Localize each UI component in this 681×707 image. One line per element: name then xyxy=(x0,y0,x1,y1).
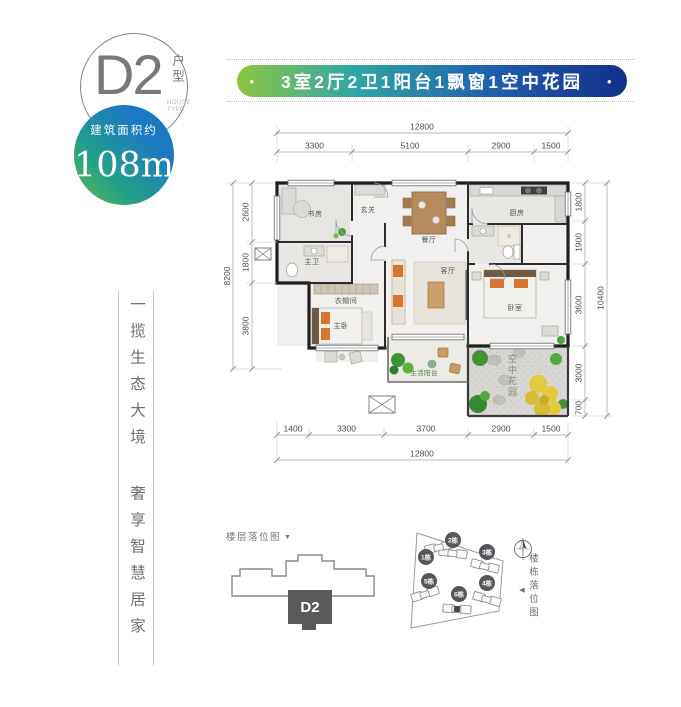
room-label-foyer: 玄关 xyxy=(361,205,376,214)
window xyxy=(565,280,571,334)
svg-text:4栋: 4栋 xyxy=(482,579,493,588)
window xyxy=(288,180,334,186)
window xyxy=(392,180,456,186)
divider-dotted-top xyxy=(227,59,635,60)
room-label-study: 书房 xyxy=(308,209,323,218)
slogan-line-2: 奢享智慧居家 xyxy=(125,485,147,644)
svg-text:700: 700 xyxy=(574,401,584,415)
site-plan-label: 楼栋落位图 ◀ xyxy=(517,553,539,621)
room-label-master-bath: 主卫 xyxy=(305,257,320,266)
svg-text:1栋: 1栋 xyxy=(421,553,432,562)
unit-d2-label: D2 xyxy=(300,599,319,616)
svg-text:8200: 8200 xyxy=(222,266,232,285)
divider-dotted-bottom xyxy=(227,101,635,102)
floor-plan: 书房 玄关 餐厅 厨房 主卫 衣帽间 主卧 客厅 卧室 生活阳台 12800 3… xyxy=(222,112,646,492)
svg-text:3600: 3600 xyxy=(574,295,584,314)
slogan-vertical: 一揽生态大境 奢享智慧居家 xyxy=(118,290,154,666)
area-badge: 建筑面积约 108m2 xyxy=(74,105,174,205)
dimensions-top: 12800 3300 5100 2900 1500 xyxy=(274,122,571,163)
foyer-cabinet xyxy=(355,185,385,195)
ac-platform xyxy=(255,248,271,260)
window xyxy=(274,196,280,240)
room-label-living: 客厅 xyxy=(441,266,456,275)
window xyxy=(565,192,571,216)
floor-location-diagram: 楼层落位图 ▼ D2 xyxy=(222,528,417,693)
svg-text:1500: 1500 xyxy=(542,424,561,434)
svg-text:3300: 3300 xyxy=(337,424,356,434)
svg-text:1900: 1900 xyxy=(574,233,584,252)
equipment-platform xyxy=(369,396,395,413)
svg-text:3栋: 3栋 xyxy=(482,548,493,557)
room-label-master-bedroom: 主卧 xyxy=(334,321,349,330)
svg-text:1800: 1800 xyxy=(241,253,251,272)
feature-text: 3室2厅2卫1阳台1飘窗1空中花园 xyxy=(281,69,583,94)
bay-window xyxy=(316,345,378,351)
svg-text:3300: 3300 xyxy=(305,141,324,151)
svg-text:3800: 3800 xyxy=(241,316,251,335)
area-label: 建筑面积约 xyxy=(74,122,174,138)
svg-text:1500: 1500 xyxy=(542,141,561,151)
feature-banner: • 3室2厅2卫1阳台1飘窗1空中花园 • xyxy=(237,65,627,97)
unit-location-marker xyxy=(454,606,460,612)
brochure-page: D2 户型 HOUSE TYPE 建筑面积约 108m2 • 3室2厅2卫1阳台… xyxy=(0,0,681,707)
svg-text:5100: 5100 xyxy=(401,141,420,151)
svg-text:12800: 12800 xyxy=(410,449,434,459)
unit-code: D2 xyxy=(94,42,162,107)
bullet-icon: • xyxy=(607,74,615,89)
dimensions-left: 8200 2600 1800 3800 xyxy=(222,180,282,372)
svg-text:2600: 2600 xyxy=(241,202,251,221)
room-label-balcony: 生活阳台 xyxy=(410,368,438,377)
room-label-bedroom: 卧室 xyxy=(508,303,523,312)
svg-text:2栋: 2栋 xyxy=(448,536,459,545)
sliding-door xyxy=(392,334,464,340)
slogan-line-1: 一揽生态大境 xyxy=(125,296,147,455)
dimensions-bottom: 1400 3300 3700 2900 1500 12800 xyxy=(274,422,571,464)
bullet-icon: • xyxy=(249,74,257,89)
svg-text:3000: 3000 xyxy=(574,363,584,382)
floor-diagram-title: 楼层落位图 xyxy=(226,531,281,543)
svg-text:12800: 12800 xyxy=(410,122,434,132)
room-label-dining: 餐厅 xyxy=(422,235,437,244)
living-furniture xyxy=(392,260,469,324)
svg-text:1800: 1800 xyxy=(574,192,584,211)
room-label-cloakroom: 衣帽间 xyxy=(335,296,358,305)
window xyxy=(490,343,554,349)
svg-text:2900: 2900 xyxy=(492,141,511,151)
triangle-down-icon: ▼ xyxy=(284,534,291,541)
room-label-kitchen: 厨房 xyxy=(510,208,525,217)
triangle-left-icon: ◀ xyxy=(517,586,525,594)
svg-text:10400: 10400 xyxy=(596,286,606,310)
building-outline: D2 xyxy=(232,555,374,630)
svg-text:3700: 3700 xyxy=(417,424,436,434)
room-label-sky-garden: 空中花园 xyxy=(506,354,519,398)
area-value: 108m2 xyxy=(74,141,174,184)
unit-type-en: HOUSE TYPE xyxy=(167,100,191,114)
svg-text:2900: 2900 xyxy=(492,424,511,434)
svg-text:1400: 1400 xyxy=(284,424,303,434)
dimensions-right: 1800 1900 3600 3000 700 10400 xyxy=(572,180,612,419)
cloakroom-wardrobe xyxy=(314,284,378,294)
svg-text:6栋: 6栋 xyxy=(454,590,465,599)
svg-text:5栋: 5栋 xyxy=(424,577,435,586)
unit-type-label: 户型 xyxy=(168,54,187,85)
